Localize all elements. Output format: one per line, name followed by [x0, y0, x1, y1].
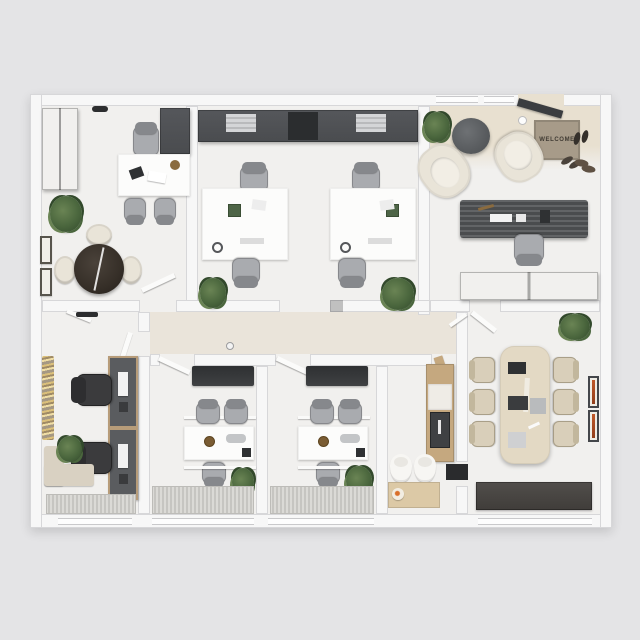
floor-grate — [270, 486, 374, 514]
tv-screen — [306, 366, 368, 386]
laptop — [508, 362, 526, 374]
meeting-chair — [224, 402, 248, 424]
monitor — [118, 444, 128, 468]
plant — [50, 196, 82, 232]
cabinet-trays — [226, 114, 256, 132]
laptop — [508, 396, 528, 410]
executive-chair — [133, 126, 159, 156]
conference-chair — [553, 421, 577, 447]
plant — [424, 112, 450, 142]
pendant-light — [518, 116, 527, 125]
desk-accessory — [490, 214, 512, 222]
desk-accessory — [530, 398, 546, 414]
dining-chair — [54, 256, 76, 284]
door-mat — [446, 464, 468, 480]
wall — [138, 312, 150, 332]
desk-accessory — [204, 436, 215, 447]
wall — [194, 354, 276, 366]
meeting-chair — [310, 402, 334, 424]
desk-accessory — [170, 160, 180, 170]
meeting-chair — [338, 402, 362, 424]
floor-grate — [46, 494, 136, 514]
desk-accessory — [228, 204, 241, 217]
welcome-mat-text: WELCOME — [539, 137, 575, 143]
artwork-orange — [588, 410, 599, 442]
wall — [310, 354, 432, 366]
desk-accessory — [242, 448, 251, 457]
wall — [430, 300, 470, 312]
window — [484, 96, 514, 103]
wall — [138, 356, 150, 514]
cabinet-trays — [356, 114, 386, 132]
wall — [456, 312, 468, 462]
food-plate — [392, 488, 404, 500]
conference-chair — [471, 357, 495, 383]
window — [152, 518, 254, 525]
coffee-table — [452, 118, 490, 154]
toilet — [414, 454, 436, 482]
conference-chair — [471, 389, 495, 415]
window — [478, 518, 592, 525]
wall — [500, 300, 600, 312]
desk-accessory — [508, 432, 526, 448]
desk-accessory — [226, 434, 246, 443]
wall — [30, 94, 42, 528]
meeting-chair — [196, 402, 220, 424]
desk-accessory — [356, 448, 365, 457]
floor-plan-render: WELCOME — [0, 0, 640, 640]
floor-grate — [152, 486, 254, 514]
toilet — [390, 454, 412, 482]
desk-accessory — [240, 238, 264, 244]
task-chair — [232, 258, 260, 284]
guest-chair — [154, 198, 176, 222]
corner-cabinet — [160, 108, 190, 154]
wall — [176, 300, 280, 312]
plant — [58, 436, 82, 462]
desk-accessory — [516, 214, 526, 222]
wall — [600, 94, 612, 528]
wall — [456, 486, 468, 514]
desk-accessory — [119, 402, 128, 412]
wall — [330, 300, 430, 312]
faucet — [438, 420, 441, 434]
picture-frame — [40, 236, 52, 264]
window — [436, 96, 478, 103]
corridor-floor — [150, 312, 456, 354]
desk-accessory — [119, 474, 128, 484]
window — [58, 518, 132, 525]
artwork-orange — [588, 376, 599, 408]
desk-accessory — [340, 242, 351, 253]
cabinet-shelf — [428, 384, 452, 410]
conference-chair — [553, 389, 577, 415]
conference-chair — [471, 421, 495, 447]
wall — [42, 300, 140, 312]
monitor — [118, 372, 128, 396]
task-chair — [338, 258, 366, 284]
dining-chair — [86, 224, 112, 246]
credenza — [460, 272, 598, 300]
desk-accessory — [212, 242, 223, 253]
desk-accessory — [251, 199, 266, 211]
picture-frame — [40, 268, 52, 296]
task-chair — [514, 234, 544, 262]
sideboard — [476, 482, 592, 510]
ceiling-light — [76, 312, 98, 317]
guest-chair — [124, 198, 146, 222]
cabinet-dark-section — [288, 112, 318, 140]
wall-art-gold — [42, 356, 54, 440]
desk-accessory — [340, 434, 360, 443]
bench — [44, 464, 94, 486]
plant — [200, 278, 226, 308]
tv-screen — [192, 366, 254, 386]
black-office-chair — [76, 374, 112, 406]
desk-accessory — [368, 238, 392, 244]
wardrobe-cabinet — [42, 108, 78, 190]
corridor-lamp — [226, 342, 234, 350]
desk-accessory — [540, 210, 550, 223]
conference-chair — [553, 357, 577, 383]
plant — [560, 314, 590, 340]
ceiling-light — [92, 106, 108, 112]
window — [268, 518, 374, 525]
desk-accessory — [318, 436, 329, 447]
wall — [256, 366, 268, 514]
wall — [376, 366, 388, 514]
desk-accessory — [379, 199, 394, 211]
plant — [382, 278, 414, 310]
round-table — [74, 244, 124, 294]
wall-dark-face — [330, 300, 343, 312]
